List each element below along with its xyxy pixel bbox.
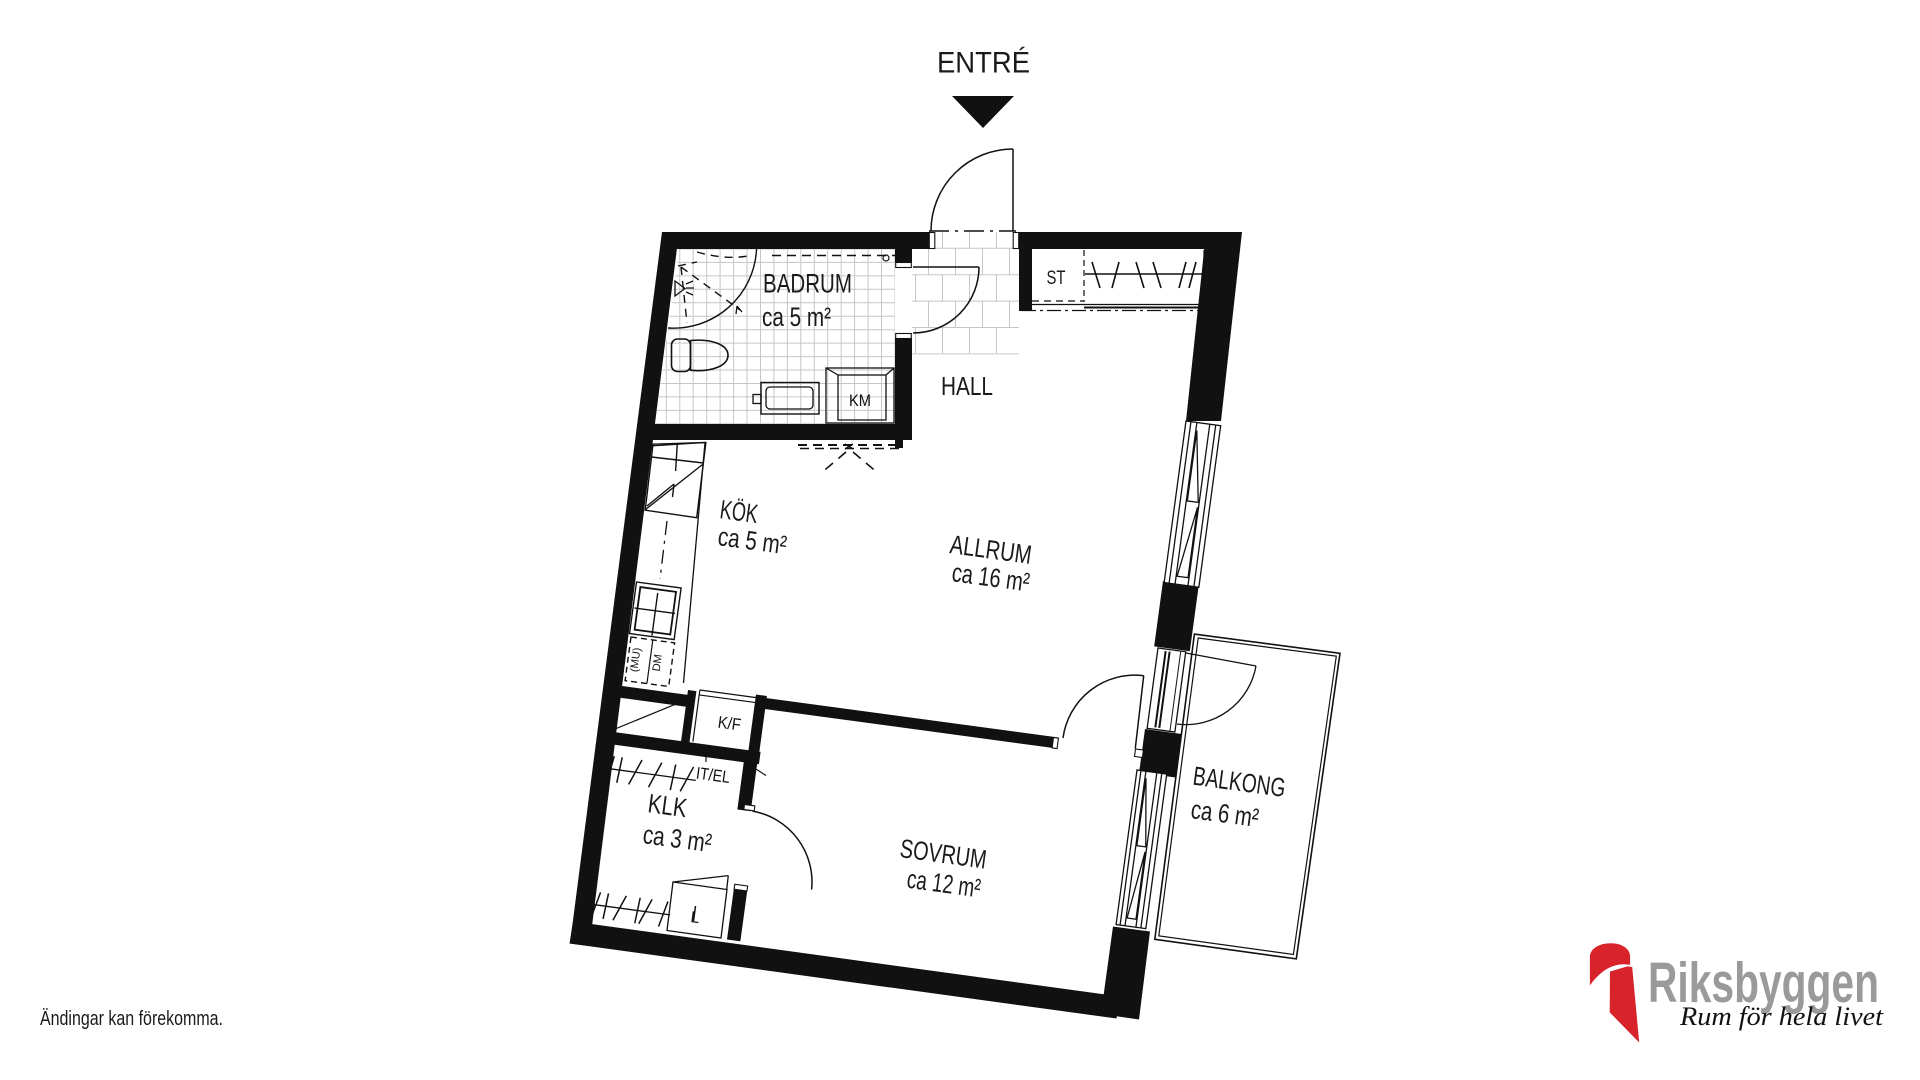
svg-text:ENTRÉ: ENTRÉ	[937, 47, 1030, 80]
svg-text:Ändingar kan förekomma.: Ändingar kan förekomma.	[40, 1008, 223, 1030]
svg-text:KM: KM	[849, 392, 871, 410]
svg-text:ca 5 m²: ca 5 m²	[762, 302, 831, 332]
svg-text:BADRUM: BADRUM	[763, 269, 852, 299]
svg-text:KLK: KLK	[646, 788, 689, 823]
svg-text:DM: DM	[651, 654, 665, 673]
svg-text:HALL: HALL	[941, 373, 993, 401]
svg-text:K/F: K/F	[717, 713, 742, 735]
svg-text:Rum för hela livet: Rum för hela livet	[1679, 1002, 1884, 1031]
svg-text:ST: ST	[1047, 268, 1066, 289]
